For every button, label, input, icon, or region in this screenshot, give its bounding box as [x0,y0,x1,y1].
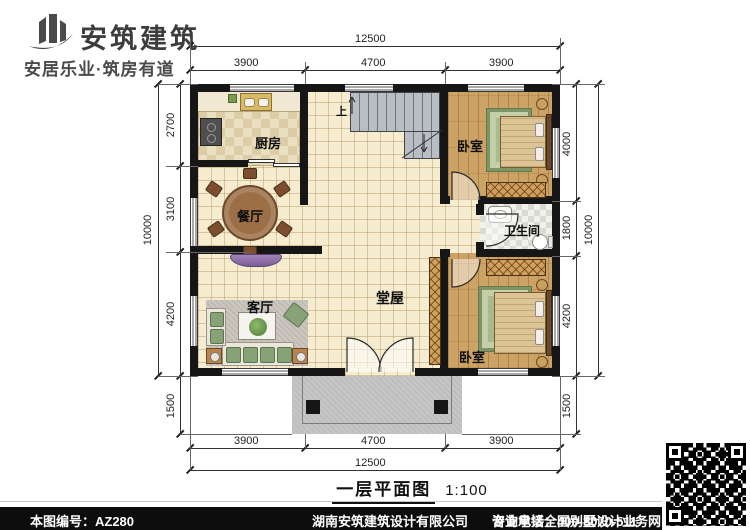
dim-label: 12500 [355,33,386,45]
footer-phone: 咨询电话：400-8070-511 [492,511,637,530]
extension-line [552,201,581,202]
room-label-bath: 卫生间 [490,222,554,239]
extension-line [445,434,446,448]
footer-divider [0,501,750,502]
dim-line [190,46,560,47]
footer-plan-no: 本图编号：AZ280 [30,511,134,530]
extension-line [166,166,198,167]
room-label-bedroom-top: 卧室 [448,136,492,155]
extension-line [560,376,561,470]
plan-title: 一层平面图 [332,475,435,504]
floor-plan-page: 安筑建筑 安居乐业·筑房有道 安筑建筑 hnazjz.com www.hnazj… [0,0,750,530]
extension-line [445,62,446,84]
extension-line [180,434,292,435]
extension-line [190,376,191,470]
footer-company: 湖南安筑建筑设计有限公司 [312,511,468,530]
dim-label: 3100 [165,197,177,221]
dim-label: 1800 [561,216,573,240]
dim-line [158,84,159,376]
room-label-living: 客厅 [228,297,292,316]
room-label-dining: 餐厅 [222,206,278,225]
dim-label: 3900 [489,435,513,447]
dim-label: 1500 [165,394,177,418]
door-arcs-overlay [0,0,750,530]
dim-line [190,70,560,71]
dim-line [190,448,560,449]
footer-web-label: 网 [648,511,661,530]
dim-label: 4700 [361,57,385,69]
footer-bar: 本图编号：AZ280 湖南安筑建筑设计有限公司 专业承接全国别墅设计业务 咨询电… [0,507,750,530]
dim-label: 10000 [142,215,154,246]
room-label-bedroom-bottom: 卧室 [450,347,494,366]
extension-line [552,84,605,85]
dim-label: 12500 [355,457,386,469]
dim-label: 3900 [489,57,513,69]
extension-line [305,434,306,448]
extension-line [560,38,561,62]
extension-line [190,62,191,84]
qr-code [662,439,750,530]
dim-label: 3900 [234,57,258,69]
extension-line [158,376,198,377]
plan-scale: 1:100 [445,482,488,499]
dim-line [180,84,181,434]
dim-label: 4200 [561,304,573,328]
extension-line [552,256,581,257]
dim-line [576,84,577,434]
dim-line [598,84,599,376]
extension-line [462,434,581,435]
extension-line [305,62,306,84]
dim-label: 4000 [561,132,573,156]
extension-line [190,38,191,62]
room-label-kitchen: 厨房 [236,133,300,152]
dim-label: 10000 [583,215,595,246]
dim-line [190,470,560,471]
room-label-hall: 堂屋 [358,288,422,308]
extension-line [560,62,561,84]
dim-label: 4200 [165,302,177,326]
dim-label: 3900 [234,435,258,447]
extension-line [158,84,198,85]
extension-line [166,252,252,253]
dim-label: 1500 [561,394,573,418]
dim-label: 4700 [361,435,385,447]
dim-label: 2700 [165,113,177,137]
